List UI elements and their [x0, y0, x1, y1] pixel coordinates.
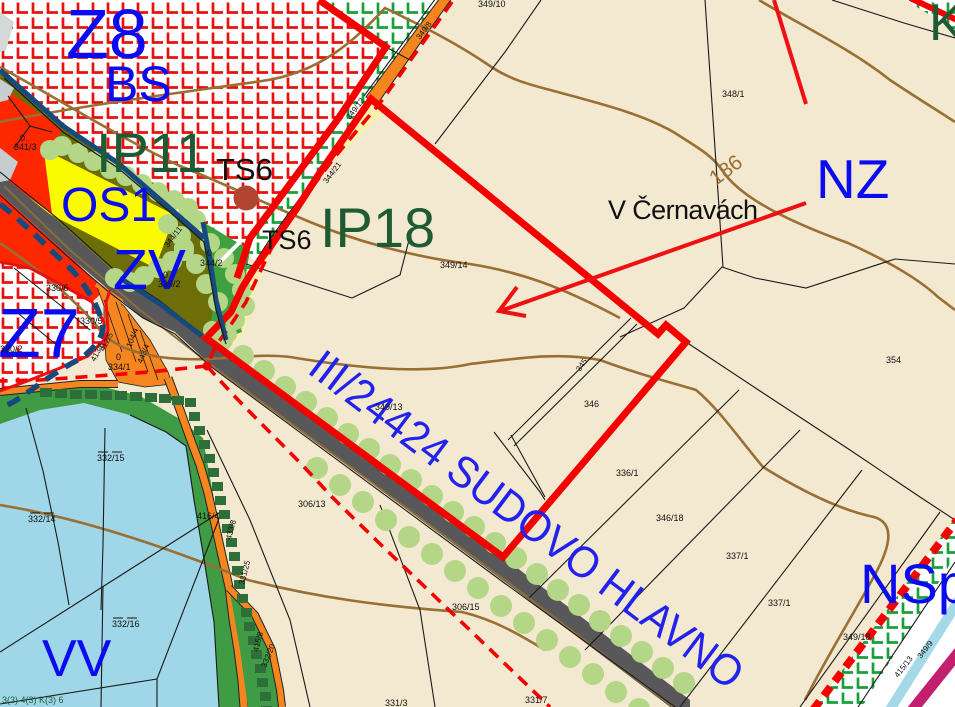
- svg-text:IP18: IP18: [320, 196, 435, 259]
- svg-text:IP11: IP11: [96, 121, 207, 184]
- svg-text:TS6: TS6: [262, 225, 312, 255]
- svg-text:331/7: 331/7: [525, 695, 548, 705]
- svg-text:349/18: 349/18: [843, 632, 871, 642]
- svg-text:3(3) 4(3) K(3) 6: 3(3) 4(3) K(3) 6: [2, 695, 64, 705]
- svg-text:344/2: 344/2: [200, 258, 223, 268]
- svg-text:346: 346: [584, 399, 599, 409]
- svg-text:348/1: 348/1: [722, 89, 745, 99]
- svg-text:332/16: 332/16: [112, 619, 140, 629]
- svg-text:0: 0: [116, 352, 121, 362]
- svg-text:339/2: 339/2: [158, 279, 181, 289]
- svg-text:330/6: 330/6: [46, 283, 69, 293]
- svg-text:349/14: 349/14: [440, 260, 468, 270]
- svg-text:TS6: TS6: [216, 152, 273, 187]
- svg-text:NZ: NZ: [816, 148, 889, 210]
- svg-text:349/10: 349/10: [478, 0, 506, 9]
- svg-text:334/1: 334/1: [108, 362, 131, 372]
- svg-text:336/1: 336/1: [616, 468, 639, 478]
- svg-text:337/1: 337/1: [768, 598, 791, 608]
- svg-text:349/13: 349/13: [375, 402, 403, 412]
- svg-text:NSp: NSp: [860, 552, 955, 615]
- svg-text:330/2: 330/2: [0, 344, 23, 354]
- svg-text:354: 354: [886, 355, 901, 365]
- svg-text:331/3: 331/3: [385, 698, 408, 707]
- svg-text:ZV: ZV: [113, 238, 186, 302]
- svg-text:306/13: 306/13: [298, 499, 326, 509]
- svg-text:VV: VV: [42, 630, 112, 688]
- svg-text:346/18: 346/18: [656, 513, 684, 523]
- svg-text:416/4: 416/4: [197, 511, 220, 521]
- svg-text:332/15: 332/15: [97, 453, 125, 463]
- svg-text:0: 0: [163, 270, 168, 280]
- svg-text:0.: 0.: [20, 133, 28, 143]
- svg-text:BS: BS: [105, 56, 172, 112]
- svg-text:341/3: 341/3: [14, 142, 37, 152]
- svg-text:332/14: 332/14: [28, 514, 56, 524]
- svg-text:Z7: Z7: [0, 294, 80, 372]
- svg-text:337/1: 337/1: [726, 551, 749, 561]
- svg-text:V Černavách: V Černavách: [608, 194, 758, 225]
- svg-text:OS1: OS1: [61, 179, 157, 232]
- svg-text:306/15: 306/15: [452, 602, 480, 612]
- svg-text:0: 0: [207, 248, 212, 258]
- svg-text:330/5: 330/5: [80, 316, 103, 326]
- svg-text:K: K: [929, 0, 955, 52]
